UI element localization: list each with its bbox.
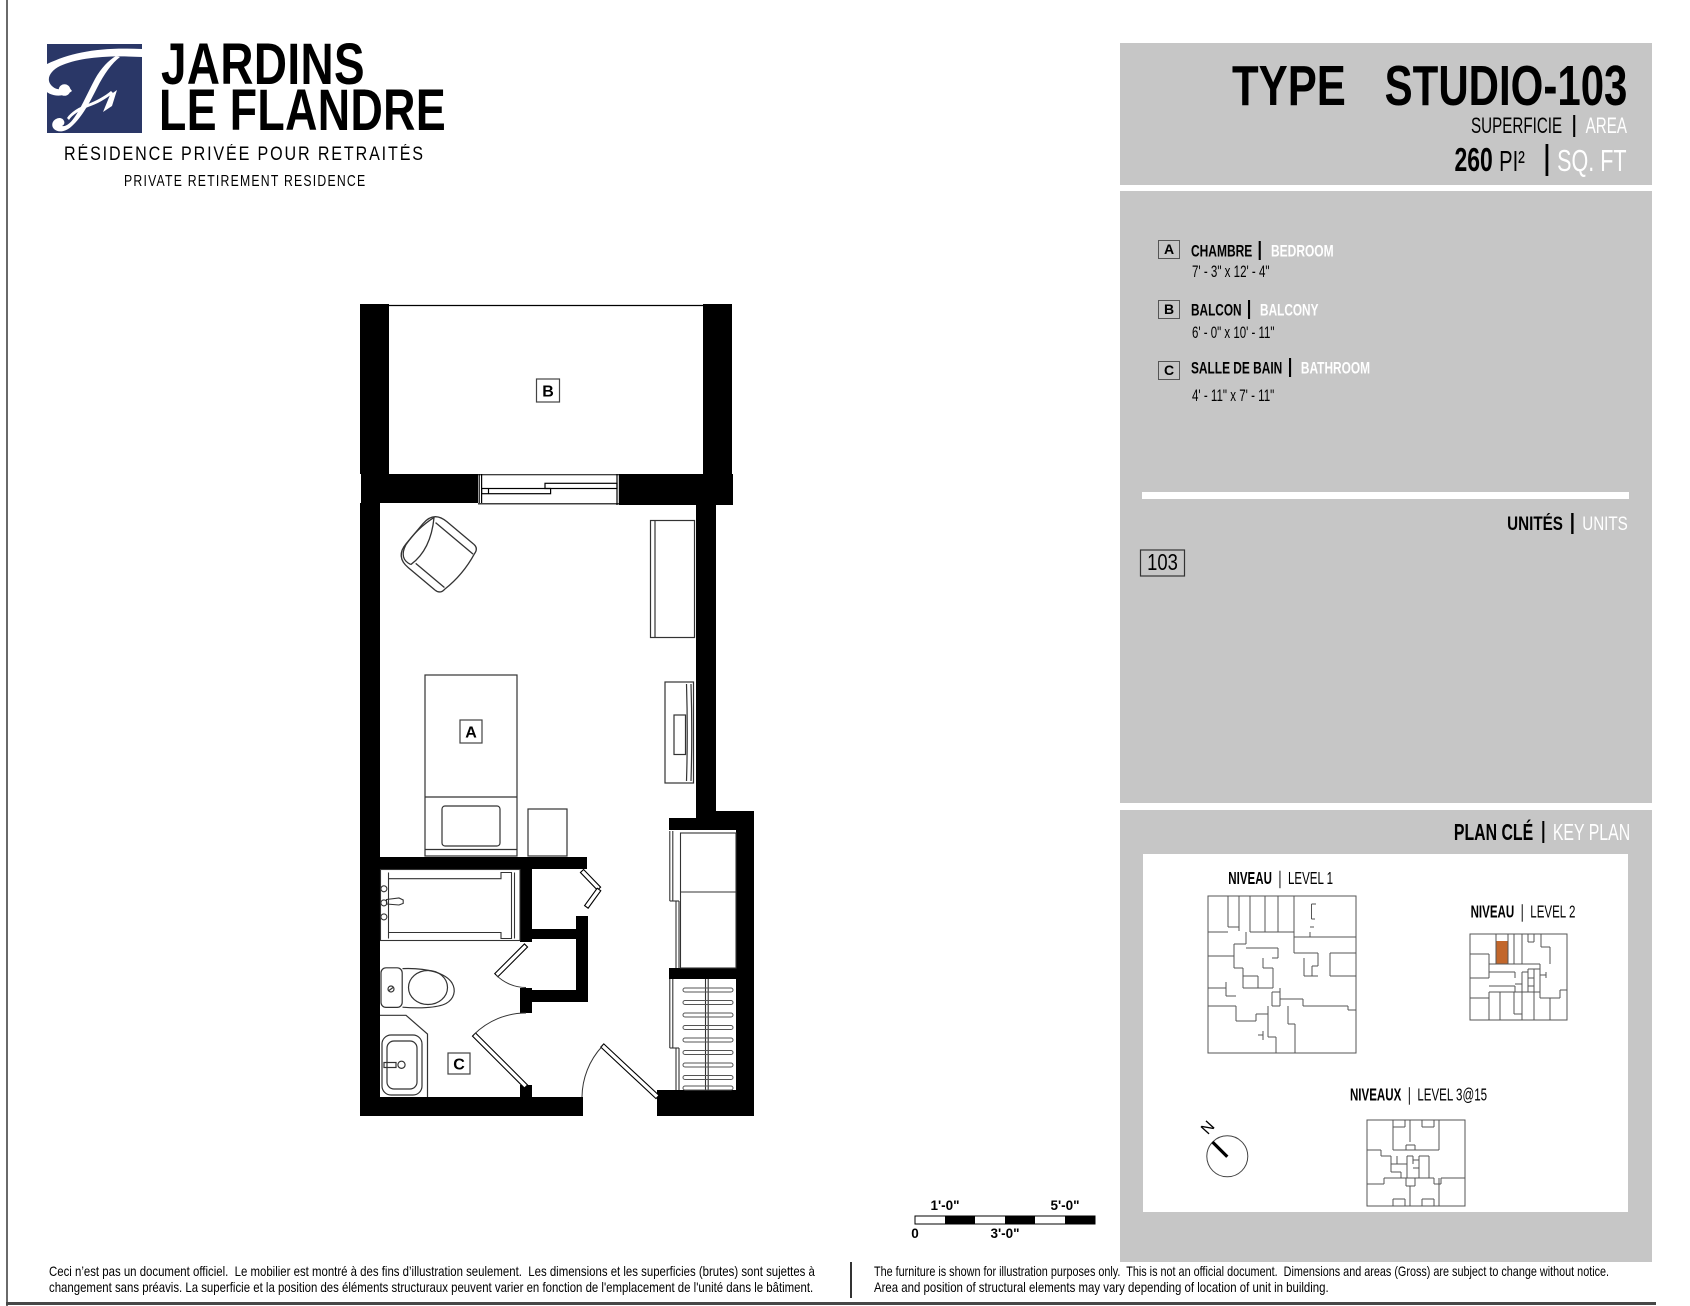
svg-text:NIVEAU ❘ LEVEL 1: NIVEAU ❘ LEVEL 1 — [1228, 870, 1333, 889]
svg-text:NIVEAUX ❘ LEVEL 3@15: NIVEAUX ❘ LEVEL 3@15 — [1350, 1086, 1487, 1105]
svg-text:B: B — [542, 384, 554, 401]
svg-text:C: C — [453, 1057, 465, 1074]
svg-text:1'-0": 1'-0" — [930, 1198, 959, 1213]
svg-text:A: A — [465, 725, 477, 742]
svg-text:N: N — [1198, 1118, 1218, 1138]
svg-text:NIVEAU ❘ LEVEL 2: NIVEAU ❘ LEVEL 2 — [1471, 903, 1576, 922]
svg-text:5'-0": 5'-0" — [1050, 1198, 1079, 1213]
svg-text:103: 103 — [1147, 550, 1178, 575]
svg-text:3'-0": 3'-0" — [990, 1226, 1019, 1241]
svg-text:0: 0 — [911, 1226, 919, 1241]
